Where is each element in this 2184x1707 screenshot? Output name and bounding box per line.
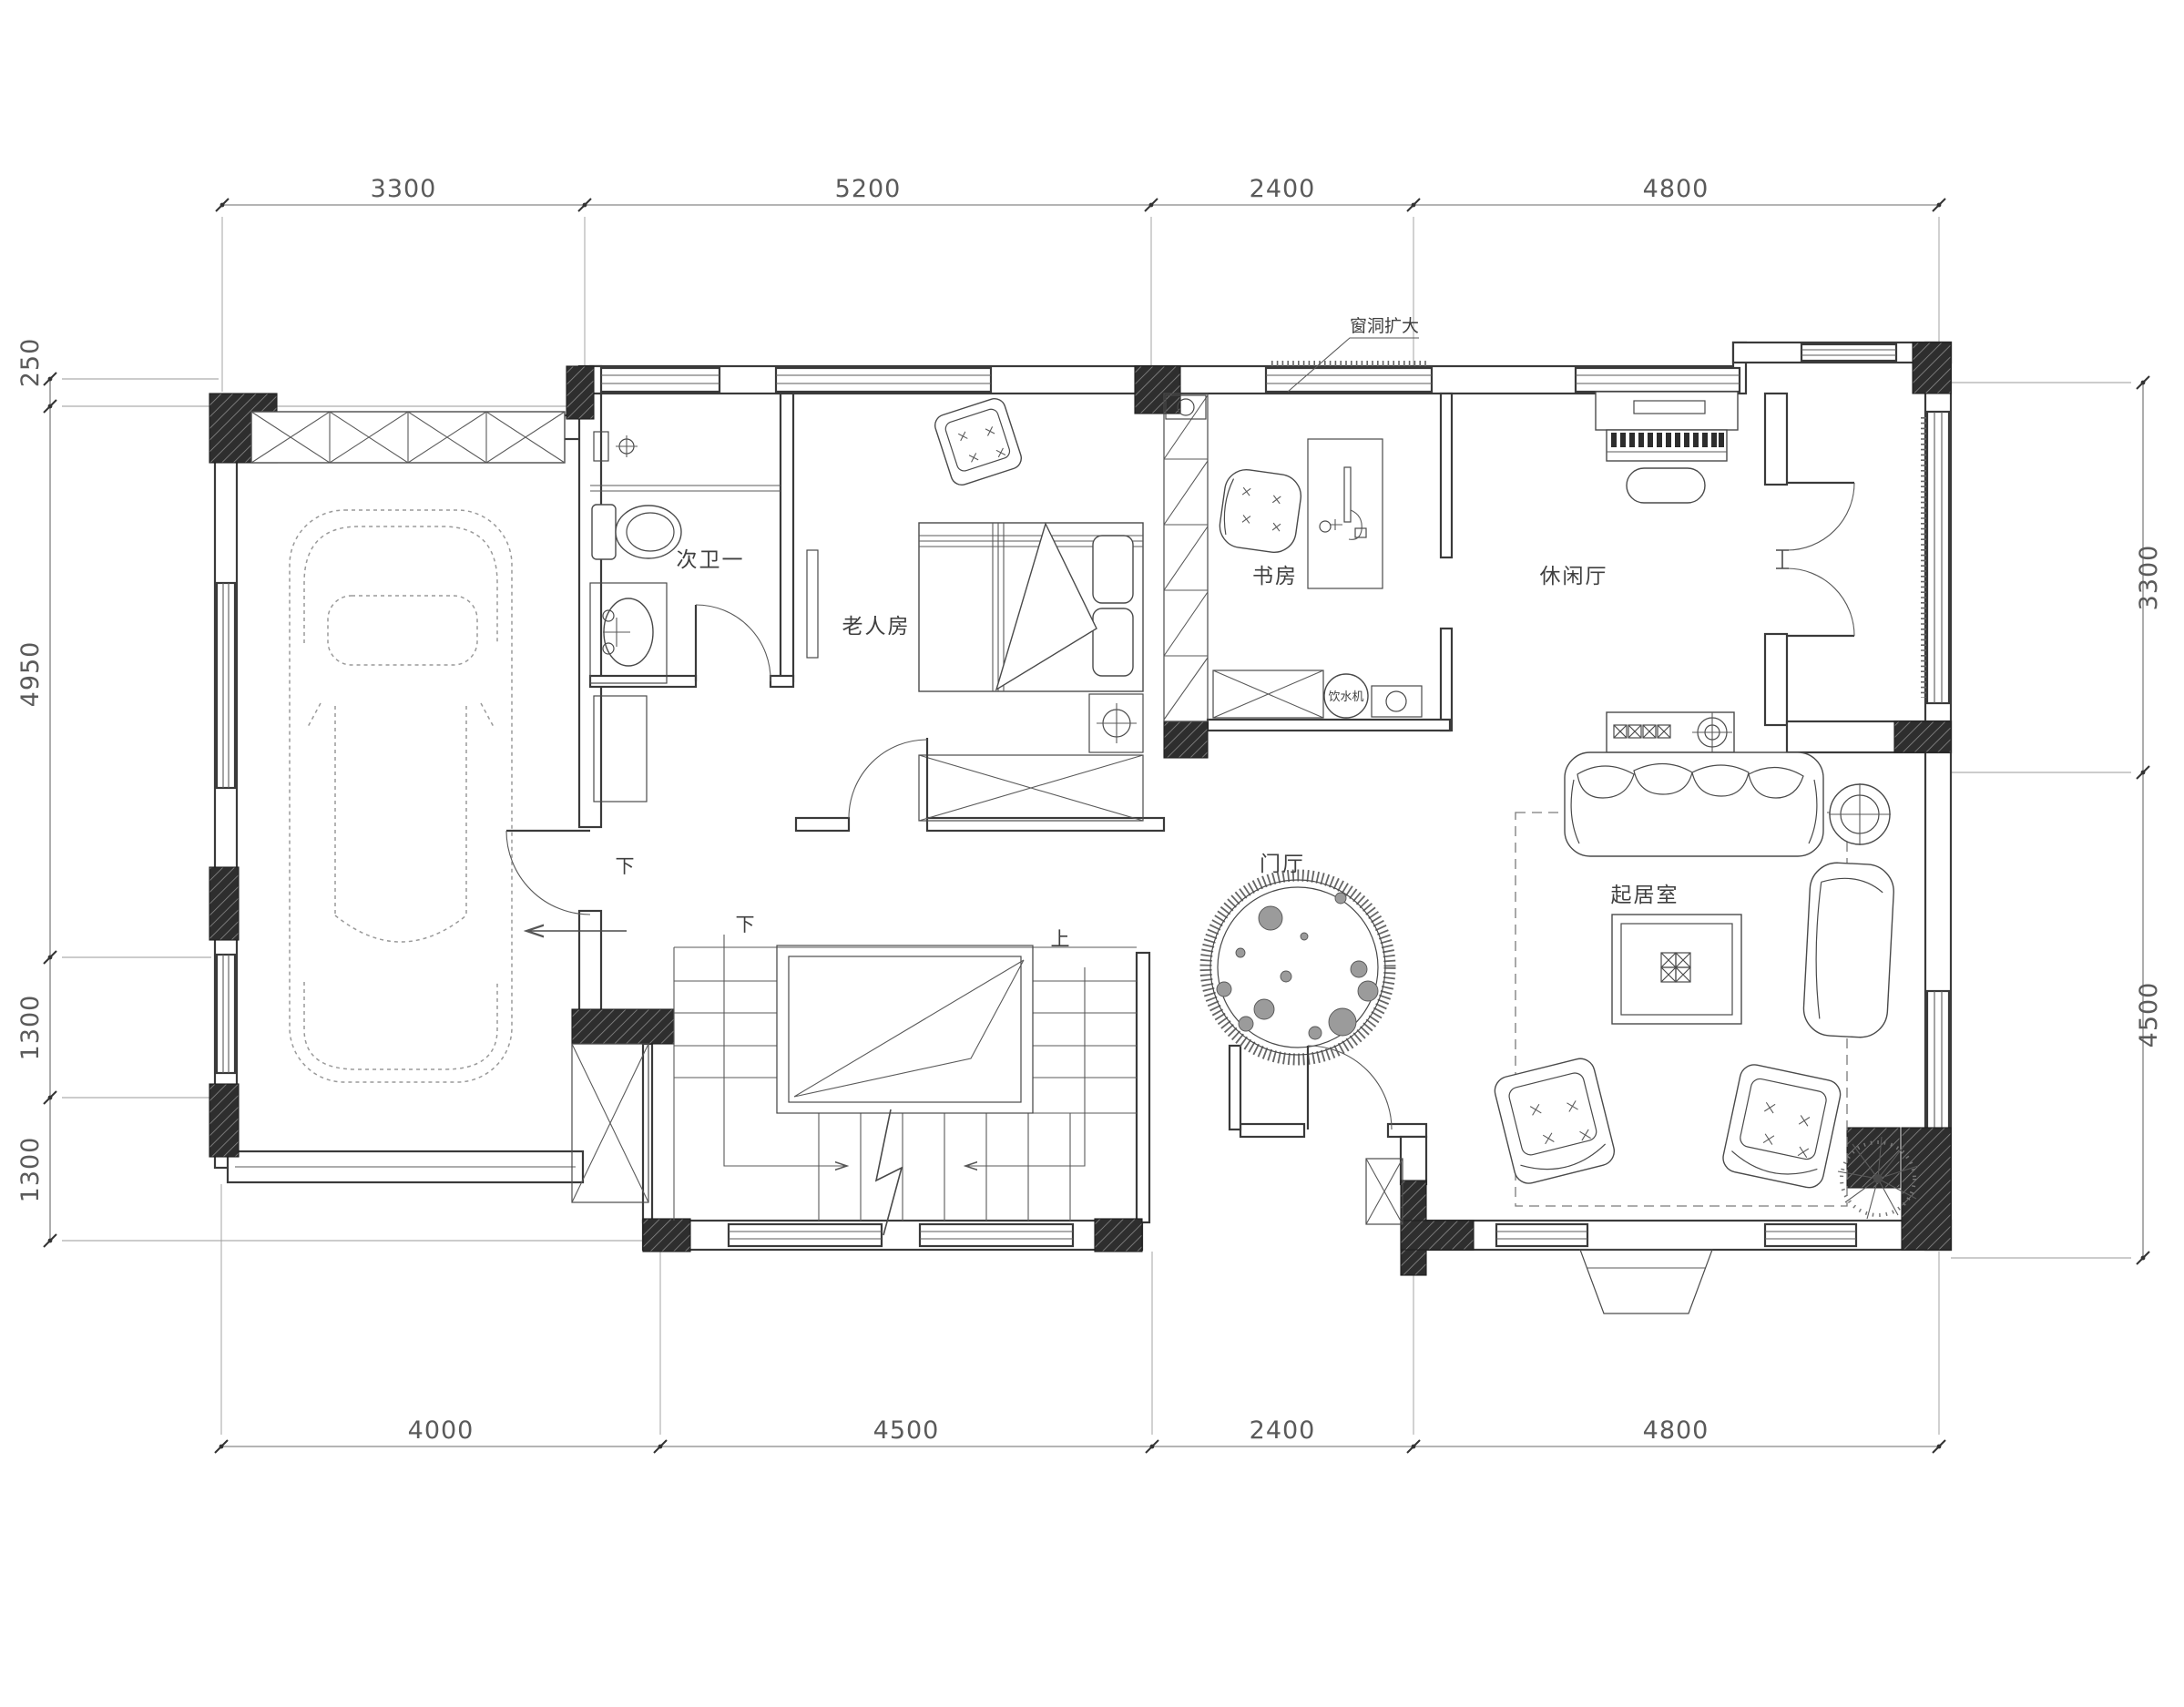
- dim-left-1: 250: [16, 338, 45, 388]
- column: [1902, 1128, 1951, 1250]
- room-label-foyer: 门厅: [1260, 853, 1305, 876]
- porch-step: [1580, 1250, 1712, 1313]
- wardrobe: [1164, 394, 1208, 721]
- desk-chair: [1217, 467, 1303, 556]
- entry-side-wall: [1401, 1137, 1426, 1184]
- piano-stool: [1627, 468, 1705, 503]
- foyer-circle-rug: [1206, 875, 1390, 1059]
- water-dispenser-label: 饮水机: [1328, 690, 1363, 704]
- foyer-west-stub: [1230, 1046, 1240, 1129]
- dimension-left: 250 4950 1300 1300: [16, 338, 643, 1247]
- pillow: [1093, 536, 1133, 603]
- dim-top-1: 3300: [371, 175, 437, 203]
- elder-bedroom: 老人房: [807, 394, 1208, 821]
- dim-right-1: 3300: [2135, 545, 2163, 611]
- window: [217, 583, 235, 788]
- garage-door-lintel: [251, 412, 565, 463]
- desk: [1308, 439, 1383, 588]
- stair-landing: [777, 945, 1033, 1113]
- bath-door: [696, 605, 771, 681]
- dim-right-2: 4500: [2135, 982, 2163, 1048]
- entry-wall-right: [1388, 1124, 1426, 1137]
- piano: [1596, 392, 1738, 503]
- bedroom-chair: [933, 396, 1025, 488]
- column: [1847, 1128, 1900, 1188]
- bath-south-stub: [771, 676, 793, 687]
- storage-bench: [919, 755, 1143, 821]
- stair-treads: [674, 947, 1137, 1221]
- bedside-table: [1089, 694, 1143, 752]
- bed: [919, 523, 1143, 691]
- garage-entry-door: [506, 831, 590, 915]
- dim-bottom-2: 4500: [873, 1416, 940, 1445]
- entry-pillar: [1366, 1159, 1403, 1224]
- column: [1913, 342, 1951, 394]
- dim-bottom-1: 4000: [408, 1416, 475, 1445]
- bedroom-south-wall-right: [927, 818, 1164, 831]
- dim-left-4: 1300: [16, 1137, 45, 1203]
- column: [1164, 721, 1208, 758]
- monitor: [1344, 467, 1351, 522]
- dresser-mirror: [807, 550, 818, 658]
- stair-direction-arrows: [724, 935, 1085, 1235]
- window: [729, 1224, 882, 1246]
- window-note-text: 窗洞扩大: [1350, 316, 1419, 336]
- dim-left-2: 4950: [16, 641, 45, 708]
- column: [1095, 1219, 1142, 1252]
- column: [643, 1219, 690, 1252]
- window: [776, 368, 991, 392]
- water-dispenser: 饮水机: [1324, 674, 1368, 718]
- study-cabinet: [1213, 670, 1323, 718]
- stair-label-down: 下: [736, 914, 755, 935]
- floor-plan-drawing: 3300 5200 2400 4800 4000 4500 2400 4800 …: [0, 0, 2184, 1707]
- bath-bedroom-wall: [781, 394, 793, 681]
- dimension-top: 3300 5200 2400 4800: [216, 175, 1945, 392]
- bay-glazed-wall-lower: [1765, 634, 1787, 725]
- side-cabinet: [1372, 686, 1422, 717]
- coffee-table: [1612, 915, 1741, 1024]
- pillow: [1093, 608, 1133, 676]
- window: [601, 368, 719, 392]
- console-table: [1607, 712, 1734, 752]
- room-label-leisure-hall: 休闲厅: [1540, 565, 1608, 588]
- column: [209, 867, 239, 940]
- dim-top-4: 4800: [1643, 175, 1709, 203]
- armchair-left: [1492, 1056, 1618, 1187]
- leisure-hall: 休闲厅: [1540, 392, 1855, 636]
- house-left-wall-lower: [579, 911, 601, 1013]
- dim-bottom-4: 4800: [1643, 1416, 1709, 1445]
- window-enlarged: [1266, 363, 1432, 392]
- stair-west-wall: [643, 1044, 652, 1222]
- garage: [251, 412, 627, 1082]
- stair-shaft: [572, 1044, 648, 1202]
- window: [1927, 991, 1949, 1129]
- study-south-wall: [1208, 720, 1450, 731]
- column: [1135, 366, 1180, 414]
- bay-glazed-wall-upper: [1765, 394, 1787, 485]
- bedroom-door: [849, 738, 927, 818]
- dim-top-2: 5200: [835, 175, 902, 203]
- room-label-elder-bedroom: 老人房: [842, 615, 911, 639]
- dim-left-3: 1300: [16, 995, 45, 1061]
- study-east-wall-lower: [1441, 629, 1452, 731]
- column: [572, 1009, 674, 1044]
- bath-south-wall: [590, 676, 696, 687]
- sofa: [1565, 752, 1823, 856]
- dim-top-3: 2400: [1250, 175, 1316, 203]
- window: [1576, 368, 1740, 392]
- room-label-living-room: 起居室: [1611, 884, 1679, 907]
- window: [1765, 1224, 1856, 1246]
- window: [920, 1224, 1073, 1246]
- study: 饮水机 书房: [1213, 439, 1422, 718]
- entry-door: [1308, 1046, 1392, 1129]
- toilet: [592, 505, 681, 559]
- car: [290, 510, 512, 1082]
- column: [1894, 721, 1951, 752]
- dimension-right: 3300 4500: [1951, 376, 2163, 1264]
- room-label-bathroom: 次卫一: [677, 548, 745, 572]
- round-side-table: [1829, 783, 1891, 845]
- chaise-lounge: [1802, 862, 1895, 1039]
- window: [1924, 412, 1949, 703]
- stair-label-down-garage: 下: [616, 855, 635, 877]
- column: [566, 366, 594, 419]
- bedroom-south-wall-left: [796, 818, 849, 831]
- entry-wall-left: [1240, 1124, 1304, 1137]
- stair-east-wall: [1137, 953, 1149, 1222]
- bathroom: 次卫一: [590, 432, 771, 802]
- floor-plan-sheet: 3300 5200 2400 4800 4000 4500 2400 4800 …: [0, 0, 2184, 1707]
- dim-bottom-3: 2400: [1250, 1416, 1316, 1445]
- window: [1801, 344, 1896, 361]
- window: [1496, 1224, 1587, 1246]
- stair-label-up: 上: [1051, 928, 1070, 950]
- window: [217, 955, 235, 1073]
- bay-double-door: [1776, 483, 1854, 636]
- armchair-right: [1720, 1062, 1843, 1191]
- column: [209, 1084, 239, 1157]
- study-east-wall-upper: [1441, 394, 1452, 557]
- room-label-study: 书房: [1252, 565, 1298, 588]
- column: [1401, 1221, 1474, 1250]
